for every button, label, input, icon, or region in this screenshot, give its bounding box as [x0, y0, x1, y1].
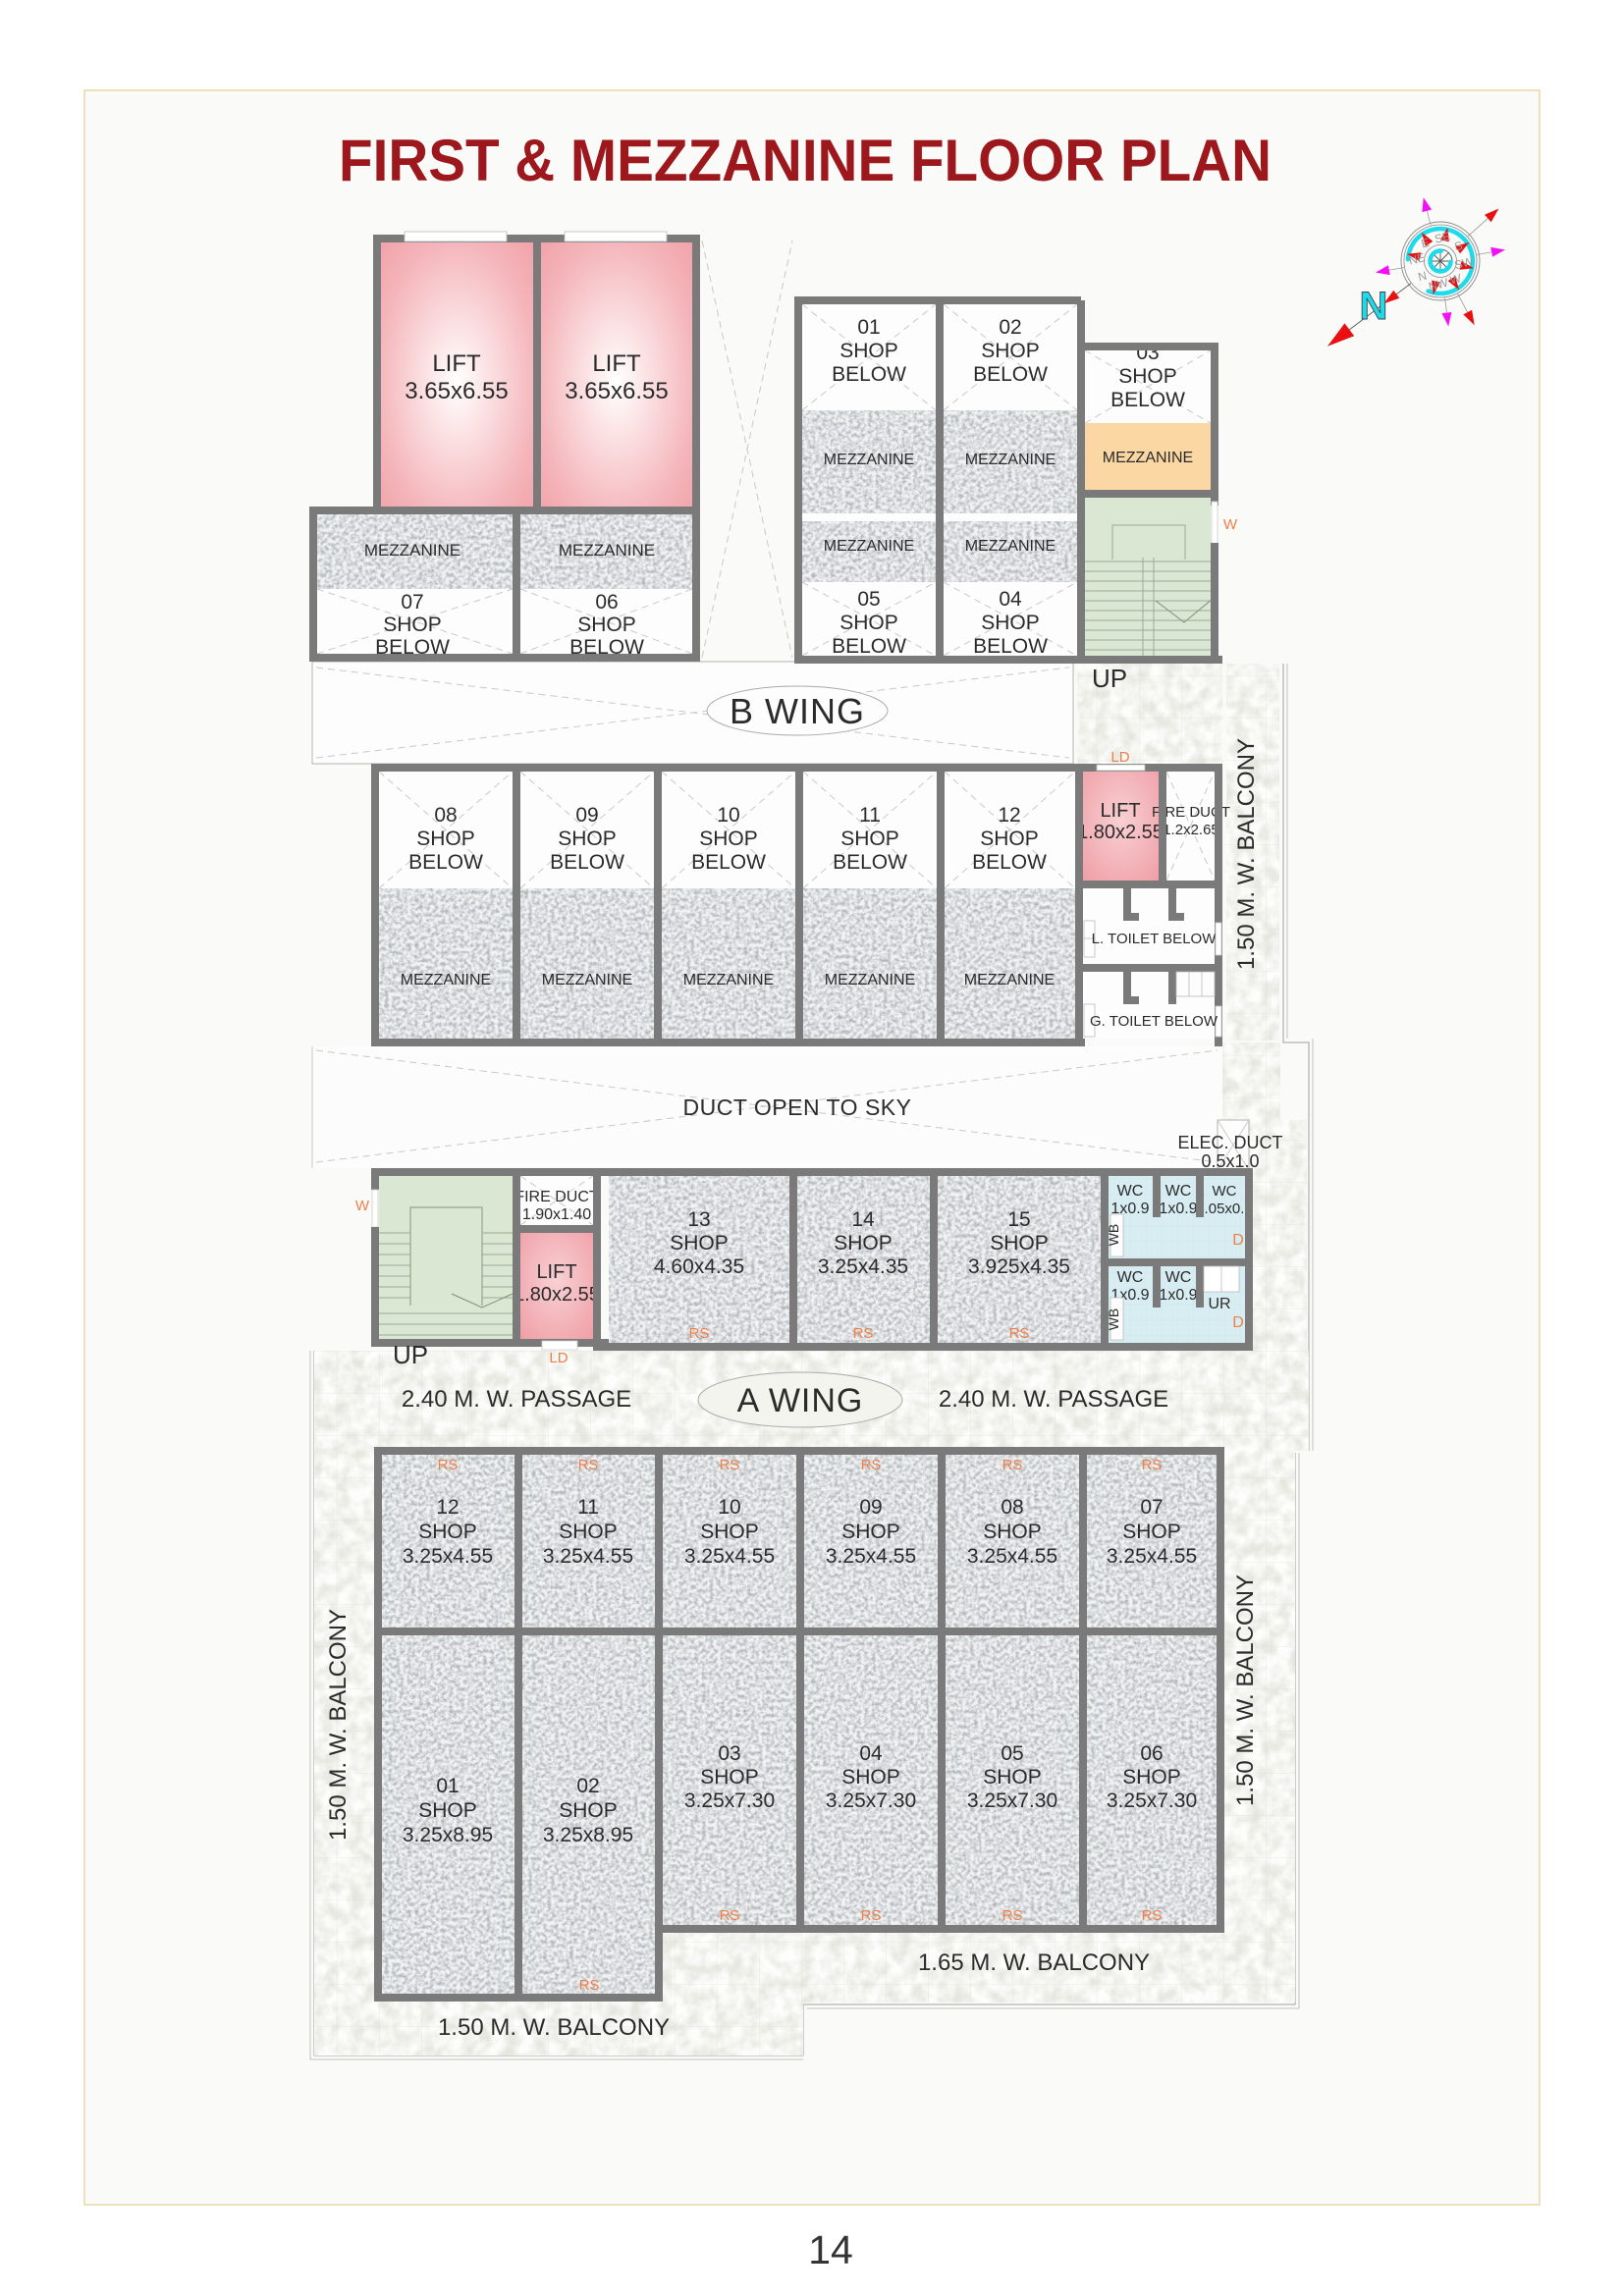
svg-text:MEZZANINE: MEZZANINE: [965, 538, 1056, 555]
svg-text:14: 14: [808, 2227, 853, 2272]
svg-text:3.25x7.30: 3.25x7.30: [967, 1789, 1057, 1812]
svg-text:RS: RS: [1142, 1907, 1163, 1924]
svg-text:MEZZANINE: MEZZANINE: [965, 452, 1056, 468]
svg-text:WC: WC: [1117, 1183, 1144, 1200]
svg-text:1.80x2.55: 1.80x2.55: [514, 1284, 600, 1306]
svg-text:RS: RS: [438, 1457, 459, 1473]
svg-text:BELOW: BELOW: [1110, 389, 1185, 411]
svg-text:03: 03: [718, 1742, 740, 1765]
svg-text:UP: UP: [393, 1340, 428, 1369]
svg-text:RS: RS: [1009, 1325, 1030, 1342]
svg-text:W: W: [355, 1198, 370, 1214]
svg-text:SHOP: SHOP: [418, 1799, 477, 1822]
svg-text:3.65x6.55: 3.65x6.55: [565, 378, 668, 404]
svg-text:RS: RS: [579, 1977, 600, 1994]
svg-text:A WING: A WING: [737, 1382, 864, 1419]
svg-text:RS: RS: [861, 1907, 882, 1924]
svg-text:06: 06: [1140, 1742, 1163, 1765]
svg-text:SHOP: SHOP: [1118, 365, 1177, 388]
svg-text:B WING: B WING: [730, 691, 865, 731]
svg-text:RS: RS: [689, 1325, 710, 1342]
svg-text:MEZZANINE: MEZZANINE: [1103, 450, 1193, 466]
svg-text:MEZZANINE: MEZZANINE: [964, 972, 1055, 988]
svg-text:1.50 M. W. BALCONY: 1.50 M. W. BALCONY: [325, 1609, 352, 1841]
svg-text:SHOP: SHOP: [1122, 1521, 1181, 1543]
svg-text:09: 09: [575, 804, 598, 827]
svg-text:SHOP: SHOP: [700, 1521, 759, 1543]
svg-text:04: 04: [999, 588, 1022, 611]
svg-text:MEZZANINE: MEZZANINE: [824, 538, 914, 555]
svg-text:SHOP: SHOP: [700, 1766, 759, 1789]
svg-text:3.25x8.95: 3.25x8.95: [543, 1824, 633, 1846]
svg-text:3.25x4.55: 3.25x4.55: [826, 1545, 916, 1568]
svg-text:3.25x4.35: 3.25x4.35: [818, 1255, 908, 1278]
svg-text:SHOP: SHOP: [558, 828, 617, 850]
svg-text:1.50 M. W. BALCONY: 1.50 M. W. BALCONY: [438, 2014, 670, 2041]
svg-text:SHOP: SHOP: [990, 1232, 1049, 1255]
svg-text:RS: RS: [720, 1457, 740, 1473]
svg-text:09: 09: [859, 1496, 882, 1519]
svg-text:BELOW: BELOW: [691, 851, 766, 874]
svg-text:06: 06: [595, 591, 618, 614]
svg-text:SHOP: SHOP: [577, 614, 636, 636]
svg-text:LD: LD: [1110, 749, 1129, 766]
svg-text:FIRE DUCT: FIRE DUCT: [514, 1189, 599, 1205]
svg-text:SHOP: SHOP: [383, 614, 442, 636]
svg-text:1x0.9: 1x0.9: [1159, 1287, 1197, 1304]
svg-text:BELOW: BELOW: [832, 363, 906, 386]
svg-text:SHOP: SHOP: [981, 340, 1040, 362]
svg-text:LIFT: LIFT: [592, 350, 641, 377]
svg-text:SHOP: SHOP: [416, 828, 475, 850]
svg-text:UR: UR: [1208, 1296, 1230, 1312]
svg-text:D: D: [1232, 1232, 1244, 1249]
svg-text:12: 12: [998, 804, 1020, 827]
svg-text:01: 01: [436, 1775, 459, 1797]
svg-text:08: 08: [434, 804, 457, 827]
svg-text:LIFT: LIFT: [1100, 800, 1140, 822]
svg-text:08: 08: [1001, 1496, 1023, 1519]
svg-text:BELOW: BELOW: [972, 851, 1047, 874]
svg-text:W: W: [1223, 516, 1238, 533]
svg-text:4.60x4.35: 4.60x4.35: [654, 1255, 744, 1278]
svg-text:MEZZANINE: MEZZANINE: [559, 541, 655, 560]
svg-text:10: 10: [718, 1496, 740, 1519]
svg-text:10: 10: [717, 804, 739, 827]
svg-text:RS: RS: [853, 1325, 874, 1342]
svg-text:SHOP: SHOP: [418, 1521, 477, 1543]
svg-text:BELOW: BELOW: [973, 635, 1048, 658]
svg-text:MEZZANINE: MEZZANINE: [824, 452, 914, 468]
svg-text:WC: WC: [1213, 1183, 1237, 1200]
svg-text:D: D: [1232, 1314, 1244, 1331]
svg-text:1.80x2.55: 1.80x2.55: [1077, 822, 1164, 843]
svg-text:3.25x7.30: 3.25x7.30: [826, 1789, 916, 1812]
svg-text:13: 13: [687, 1208, 710, 1231]
svg-text:1x0.9: 1x0.9: [1159, 1201, 1197, 1217]
svg-text:BELOW: BELOW: [833, 851, 907, 874]
svg-text:MEZZANINE: MEZZANINE: [683, 972, 774, 988]
svg-text:SHOP: SHOP: [699, 828, 758, 850]
svg-text:1.2x2.65: 1.2x2.65: [1163, 822, 1219, 838]
svg-text:SHOP: SHOP: [839, 612, 898, 634]
svg-text:3.25x7.30: 3.25x7.30: [1107, 1789, 1197, 1812]
svg-text:DUCT OPEN TO SKY: DUCT OPEN TO SKY: [683, 1095, 912, 1120]
svg-text:04: 04: [859, 1742, 883, 1765]
svg-text:MEZZANINE: MEZZANINE: [401, 972, 491, 988]
svg-text:2.40 M. W. PASSAGE: 2.40 M. W. PASSAGE: [939, 1386, 1168, 1413]
svg-text:05: 05: [1001, 1742, 1023, 1765]
svg-text:RS: RS: [1002, 1457, 1023, 1473]
svg-text:SHOP: SHOP: [834, 1232, 893, 1255]
svg-text:2.40 M. W. PASSAGE: 2.40 M. W. PASSAGE: [402, 1386, 631, 1413]
svg-text:1.90x1.40: 1.90x1.40: [522, 1206, 591, 1223]
svg-text:LD: LD: [549, 1350, 568, 1366]
svg-text:3.25x8.95: 3.25x8.95: [403, 1824, 493, 1846]
svg-text:07: 07: [1140, 1496, 1163, 1519]
svg-text:WC: WC: [1165, 1183, 1192, 1200]
svg-text:RS: RS: [578, 1457, 599, 1473]
svg-text:02: 02: [999, 316, 1021, 339]
svg-text:07: 07: [401, 591, 423, 614]
svg-text:RS: RS: [861, 1457, 882, 1473]
svg-text:3.25x4.55: 3.25x4.55: [1107, 1545, 1197, 1568]
svg-text:SHOP: SHOP: [983, 1766, 1042, 1789]
svg-text:14: 14: [851, 1208, 875, 1231]
svg-text:RS: RS: [1002, 1907, 1023, 1924]
svg-text:BELOW: BELOW: [832, 635, 906, 658]
svg-text:1.05x0.9: 1.05x0.9: [1196, 1201, 1253, 1217]
svg-text:UP: UP: [1092, 664, 1127, 693]
svg-text:BELOW: BELOW: [408, 851, 483, 874]
svg-text:3.65x6.55: 3.65x6.55: [405, 378, 508, 404]
svg-text:SHOP: SHOP: [1122, 1766, 1181, 1789]
svg-text:SHOP: SHOP: [670, 1232, 729, 1255]
svg-text:3.925x4.35: 3.925x4.35: [968, 1255, 1070, 1278]
svg-text:3.25x4.55: 3.25x4.55: [403, 1545, 493, 1568]
svg-text:BELOW: BELOW: [550, 851, 624, 874]
svg-text:SHOP: SHOP: [980, 828, 1039, 850]
svg-text:SHOP: SHOP: [981, 612, 1040, 634]
svg-text:1.65 M. W. BALCONY: 1.65 M. W. BALCONY: [918, 1949, 1150, 1976]
svg-text:MEZZANINE: MEZZANINE: [542, 972, 632, 988]
svg-text:SHOP: SHOP: [839, 340, 898, 362]
svg-text:12: 12: [436, 1496, 459, 1519]
svg-text:01: 01: [857, 316, 880, 339]
svg-text:LIFT: LIFT: [432, 350, 481, 377]
svg-text:SHOP: SHOP: [841, 1521, 900, 1543]
svg-text:LIFT: LIFT: [536, 1261, 576, 1283]
svg-text:SHOP: SHOP: [559, 1799, 618, 1822]
svg-text:05: 05: [857, 588, 880, 611]
svg-text:SHOP: SHOP: [559, 1521, 618, 1543]
svg-text:WC: WC: [1165, 1269, 1192, 1286]
svg-text:3.25x4.55: 3.25x4.55: [967, 1545, 1057, 1568]
svg-text:G. TOILET BELOW: G. TOILET BELOW: [1090, 1013, 1218, 1030]
svg-text:3.25x7.30: 3.25x7.30: [684, 1789, 775, 1812]
svg-text:3.25x4.55: 3.25x4.55: [543, 1545, 633, 1568]
svg-text:3.25x4.55: 3.25x4.55: [684, 1545, 775, 1568]
svg-text:RS: RS: [1142, 1457, 1163, 1473]
svg-text:BELOW: BELOW: [973, 363, 1048, 386]
svg-text:02: 02: [576, 1775, 599, 1797]
svg-text:L. TOILET BELOW: L. TOILET BELOW: [1092, 931, 1218, 947]
svg-text:MEZZANINE: MEZZANINE: [825, 972, 915, 988]
svg-text:15: 15: [1007, 1208, 1030, 1231]
svg-text:FIRST & MEZZANINE FLOOR PLAN: FIRST & MEZZANINE FLOOR PLAN: [339, 128, 1272, 193]
svg-text:11: 11: [859, 804, 881, 827]
svg-text:ELEC. DUCT: ELEC. DUCT: [1177, 1133, 1282, 1152]
svg-text:N: N: [1360, 285, 1388, 328]
svg-text:MEZZANINE: MEZZANINE: [364, 541, 460, 560]
svg-text:1.50 M. W. BALCONY: 1.50 M. W. BALCONY: [1232, 1575, 1259, 1806]
svg-text:RS: RS: [720, 1907, 740, 1924]
svg-text:1.50 M. W. BALCONY: 1.50 M. W. BALCONY: [1233, 738, 1260, 970]
svg-text:WC: WC: [1117, 1269, 1144, 1286]
svg-text:11: 11: [577, 1496, 599, 1519]
svg-text:SHOP: SHOP: [983, 1521, 1042, 1543]
svg-text:SHOP: SHOP: [841, 1766, 900, 1789]
svg-text:SHOP: SHOP: [840, 828, 899, 850]
